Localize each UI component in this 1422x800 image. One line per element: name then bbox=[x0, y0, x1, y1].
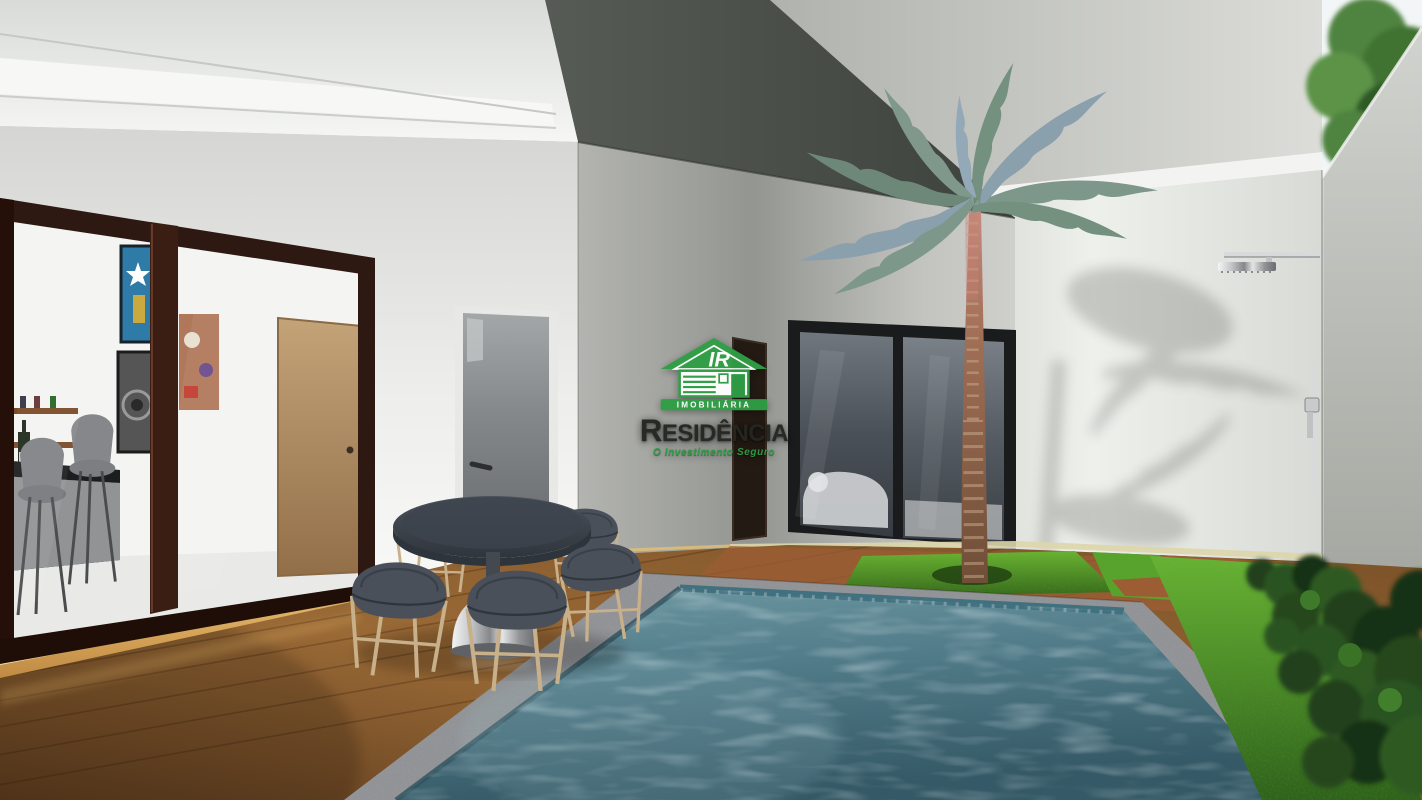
rendered-photo: IR IMOBILIÁRIA RESIDÊNCIA O Investimento… bbox=[0, 0, 1422, 800]
shower-arm bbox=[1224, 252, 1320, 257]
door-center-stile bbox=[150, 222, 178, 614]
door-glass-reflection bbox=[467, 318, 483, 362]
shower-head bbox=[1218, 262, 1276, 271]
door-right-stile bbox=[358, 258, 375, 590]
patio-ceiling bbox=[0, 0, 578, 142]
shower-bracket bbox=[1305, 398, 1319, 412]
patio-gray-door bbox=[455, 306, 558, 520]
scene-render bbox=[0, 0, 1422, 800]
shower-handset bbox=[1307, 412, 1313, 438]
wall-art-blue-poster bbox=[121, 246, 155, 342]
door-left-stile bbox=[0, 198, 14, 662]
dark-doorway bbox=[733, 338, 766, 540]
